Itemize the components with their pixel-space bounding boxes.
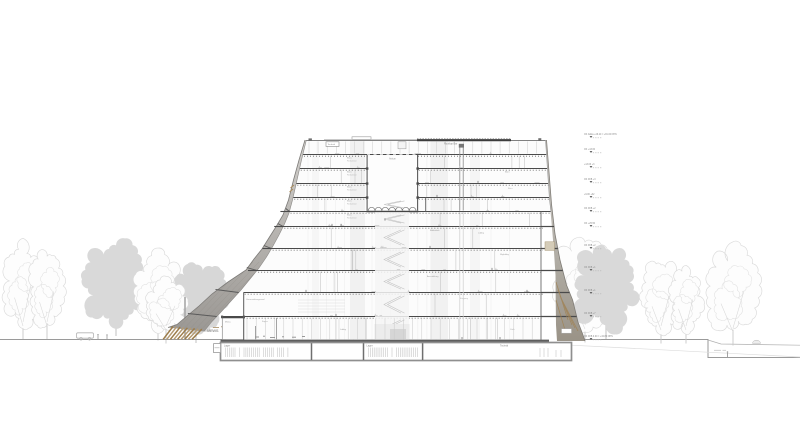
svg-text:Büro: Büro xyxy=(347,185,352,188)
svg-text:Skylobby: Skylobby xyxy=(500,254,510,256)
svg-text:Eingang: Eingang xyxy=(460,298,469,300)
svg-text:OK Attika +46.20 = +81.00 NHN: OK Attika +46.20 = +81.00 NHN xyxy=(584,133,617,136)
svg-text:Redaktion: Redaktion xyxy=(347,173,358,176)
svg-text:Redaktion: Redaktion xyxy=(347,202,358,205)
svg-text:Büro: Büro xyxy=(505,171,510,174)
svg-text:Rooftop Bar: Rooftop Bar xyxy=(444,143,458,146)
svg-text:Büro: Büro xyxy=(347,170,352,173)
svg-text:Büro: Büro xyxy=(347,213,352,216)
svg-text:Cafe: Cafe xyxy=(510,329,515,331)
svg-text:Redaktion: Redaktion xyxy=(347,159,358,162)
svg-text:Bibliothek: Bibliothek xyxy=(430,229,440,232)
svg-text:Technik: Technik xyxy=(500,345,509,348)
svg-text:MEWS: MEWS xyxy=(207,328,219,333)
svg-text:Lobby: Lobby xyxy=(340,329,347,331)
svg-text:Redaktion: Redaktion xyxy=(347,188,358,191)
svg-text:Ausstellung: Ausstellung xyxy=(427,275,439,278)
svg-text:Veranstaltungssaal: Veranstaltungssaal xyxy=(246,298,265,301)
svg-text:Lager: Lager xyxy=(367,345,373,348)
svg-text:Büro: Büro xyxy=(347,156,352,159)
svg-text:Lager: Lager xyxy=(224,345,230,348)
svg-text:Foyer: Foyer xyxy=(262,320,268,323)
svg-text:Redaktion: Redaktion xyxy=(347,216,358,219)
svg-text:Büro: Büro xyxy=(347,199,352,202)
svg-text:Büro: Büro xyxy=(508,187,513,190)
svg-text:OK FFB +2: OK FFB +2 xyxy=(584,208,596,210)
svg-text:OK FFB +2: OK FFB +2 xyxy=(584,245,596,247)
svg-text:OK FFB +3: OK FFB +3 xyxy=(584,179,596,181)
svg-text:OK +43.60: OK +43.60 xyxy=(584,149,596,151)
svg-text:OK FFB +1: OK FFB +1 xyxy=(584,290,596,292)
svg-text:OK FFB +7: OK FFB +7 xyxy=(584,313,596,315)
svg-text:Lobby: Lobby xyxy=(478,233,485,235)
svg-text:OK +25.50: OK +25.50 xyxy=(584,223,596,225)
svg-text:Atrium: Atrium xyxy=(389,157,396,160)
svg-text:Technik: Technik xyxy=(328,144,336,146)
svg-text:OK FFB 0.00 = +34.80 NHN: OK FFB 0.00 = +34.80 NHN xyxy=(584,336,613,338)
svg-text:OK FFB +1: OK FFB +1 xyxy=(584,267,596,269)
svg-text:+9.06 +32: +9.06 +32 xyxy=(584,194,595,196)
svg-text:Mews: Mews xyxy=(225,322,232,324)
svg-text:+13.06 +3: +13.06 +3 xyxy=(584,164,595,166)
